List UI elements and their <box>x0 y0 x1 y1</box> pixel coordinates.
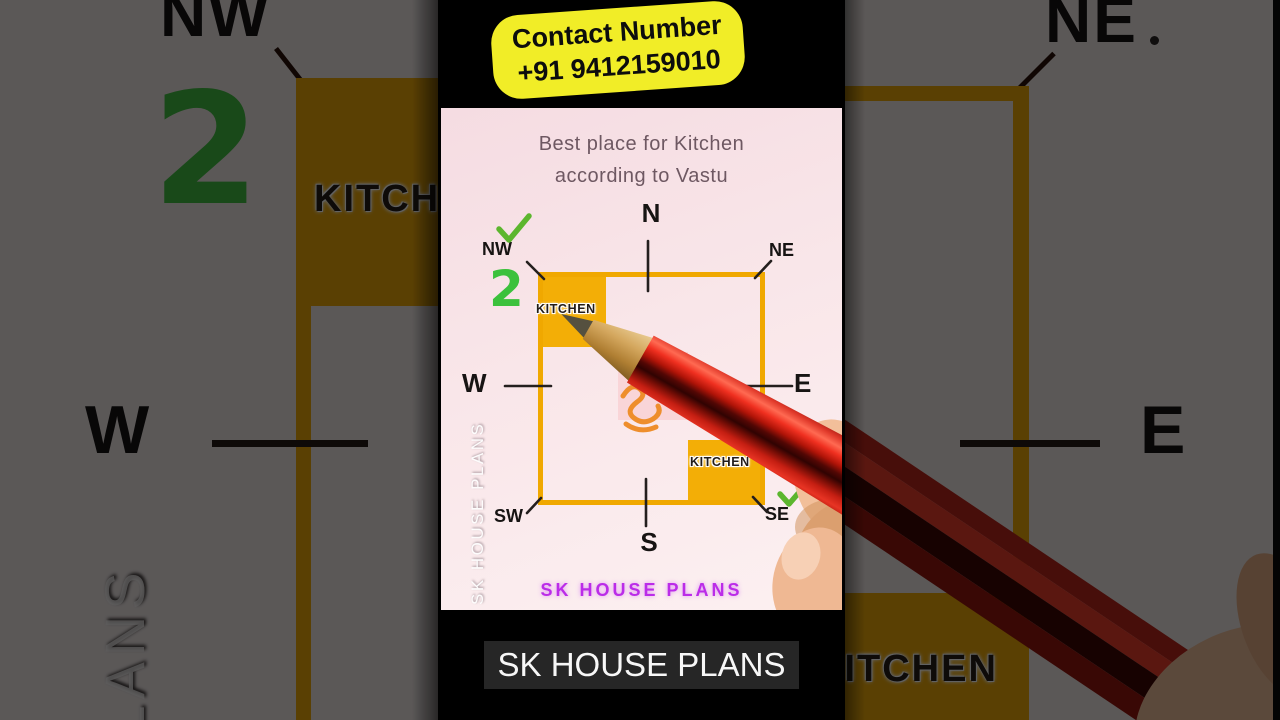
caption-text: SK HOUSE PLANS <box>484 641 800 689</box>
compass-n-label: N <box>633 200 669 226</box>
bg-pencil-layer <box>845 0 1280 720</box>
compass-ne-label: NE <box>769 241 794 259</box>
bg-watermark: SK HOUSE PLANS <box>92 566 157 720</box>
compass-s-label: S <box>631 529 667 555</box>
compass-e-label: E <box>794 370 811 396</box>
kitchen-label-se: KITCHEN <box>690 455 750 469</box>
shade <box>845 0 865 720</box>
vastu-rating: 2 <box>489 264 524 314</box>
brand-footer: SK HOUSE PLANS <box>441 580 842 601</box>
bg-compass-tick <box>212 440 368 447</box>
shade <box>412 0 438 720</box>
caption-bar: SK HOUSE PLANS <box>438 641 845 689</box>
video-center-column: Best place for Kitchen according to Vast… <box>438 0 845 720</box>
background-left-column: NW 2 KITCHEN W SK HOUSE PLANS <box>0 0 438 720</box>
compass-sw-label: SW <box>494 507 523 525</box>
bg-compass-nw-label: NW <box>160 0 271 46</box>
bg-vastu-rating: 2 <box>152 72 260 227</box>
contact-badge: Contact Number +91 9412159010 <box>489 0 746 101</box>
compass-w-label: W <box>462 370 487 396</box>
poster-title-line1: Best place for Kitchen <box>441 133 842 156</box>
kitchen-label-nw: KITCHEN <box>536 302 596 316</box>
compass-se-label: SE <box>765 505 789 523</box>
vastu-poster-card: Best place for Kitchen according to Vast… <box>441 108 842 610</box>
center-highlight-patch <box>618 352 688 420</box>
bg-square-border-line <box>296 78 311 720</box>
watermark-vertical: SK HOUSE PLANS <box>468 422 488 605</box>
frame-edge <box>1273 0 1280 720</box>
background-right-column: NE E KITCHEN <box>845 0 1280 720</box>
compass-nw-label: NW <box>482 240 512 258</box>
kitchen-box-se <box>688 440 760 500</box>
video-frame: NW 2 KITCHEN W SK HOUSE PLANS NE E KITCH… <box>0 0 1280 720</box>
poster-title-line2: according to Vastu <box>441 165 842 188</box>
bg-compass-w-label: W <box>85 396 151 464</box>
